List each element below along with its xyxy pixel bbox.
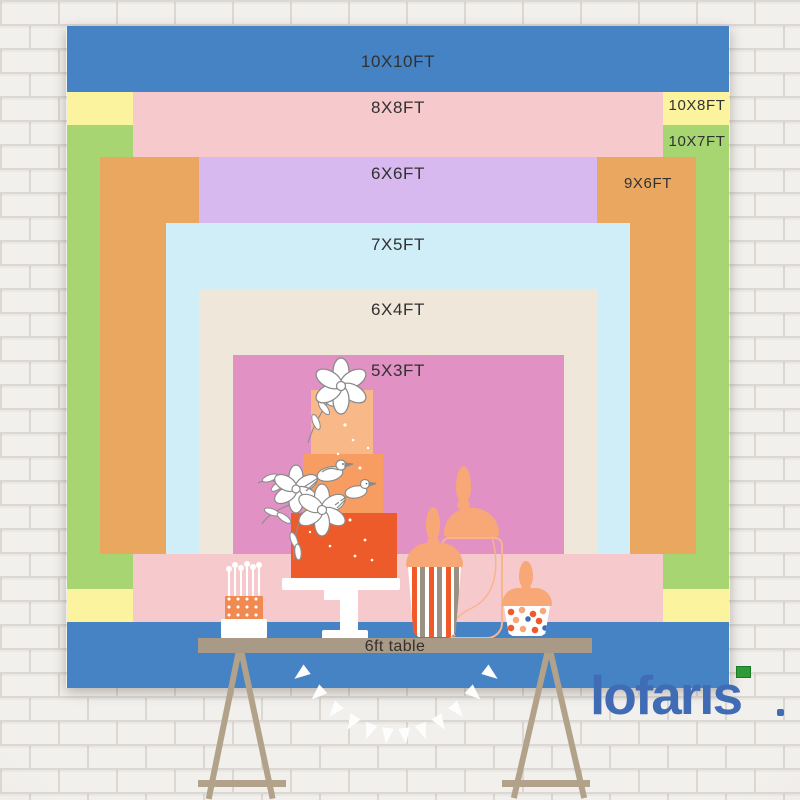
bunting-pennant (366, 722, 377, 739)
bunting-pennant (382, 727, 394, 744)
bunting-pennant (311, 684, 327, 699)
striped-jar-lid (406, 543, 463, 568)
apothecary-jar-finial (456, 466, 471, 504)
cake-pops-base (221, 619, 267, 638)
striped-jar-finial (426, 507, 440, 541)
cake-pops-block (225, 596, 263, 620)
cake-stand-step (324, 590, 358, 600)
trestle-crossbar (502, 780, 590, 787)
bunting-pennant (415, 722, 426, 739)
striped-jar-body (408, 567, 461, 637)
cake-stand-stem (340, 600, 358, 631)
bunting-pennant (481, 664, 497, 678)
lofaris-logo: lofarıs (590, 668, 741, 723)
cake-decoration-flowers-birds (250, 350, 410, 580)
trestle-crossbar (198, 780, 286, 787)
bunting-pennant (294, 664, 310, 678)
logo-text: lofarıs (590, 664, 741, 726)
table-label: 6ft table (365, 638, 426, 655)
bunting-pennant (398, 727, 410, 744)
product-image: 10X10FT10X8FT10X7FT8X8FT9X6FT6X6FT7X5FT6… (0, 0, 800, 800)
bunting-pennant (329, 701, 344, 717)
bunting-pennant (448, 701, 463, 717)
bunting-pennant (347, 713, 360, 730)
bunting-garland (280, 640, 520, 760)
bunting-pennant (465, 684, 481, 699)
logo-period-dot (777, 709, 784, 716)
logo-i-dot (736, 666, 751, 678)
candy-bowl-body (503, 606, 551, 636)
candy-bowl-lid (502, 588, 552, 606)
table-top: 6ft table (198, 638, 592, 653)
bunting-pennant (431, 713, 444, 730)
